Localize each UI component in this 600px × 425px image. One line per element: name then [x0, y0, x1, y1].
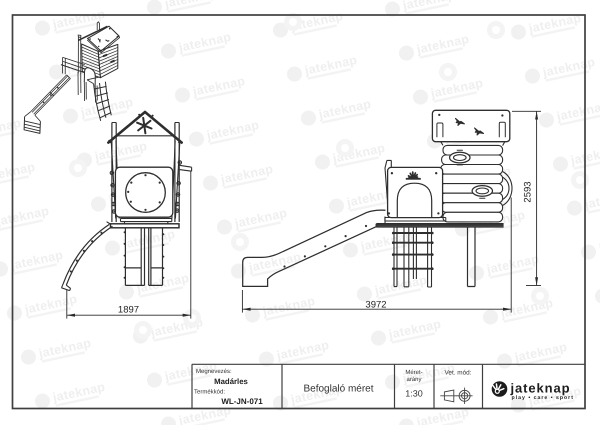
svg-text:play • care • sport: play • care • sport [512, 395, 574, 401]
svg-text:1:30: 1:30 [405, 389, 423, 399]
svg-text:Madárles: Madárles [214, 377, 248, 386]
svg-text:2593: 2593 [523, 181, 534, 202]
svg-text:jateknap: jateknap [510, 381, 571, 396]
svg-text:1897: 1897 [118, 305, 139, 316]
svg-text:3972: 3972 [365, 299, 386, 310]
svg-text:Méret-: Méret- [405, 369, 422, 376]
svg-text:arány: arány [406, 376, 421, 383]
svg-text:WL-JN-071: WL-JN-071 [221, 397, 263, 406]
svg-text:Megnevezés:: Megnevezés: [196, 368, 232, 375]
svg-text:Vet. mód:: Vet. mód: [445, 370, 472, 377]
svg-text:Termékkód:: Termékkód: [194, 389, 225, 396]
svg-text:Befoglaló méret: Befoglaló méret [303, 384, 373, 395]
